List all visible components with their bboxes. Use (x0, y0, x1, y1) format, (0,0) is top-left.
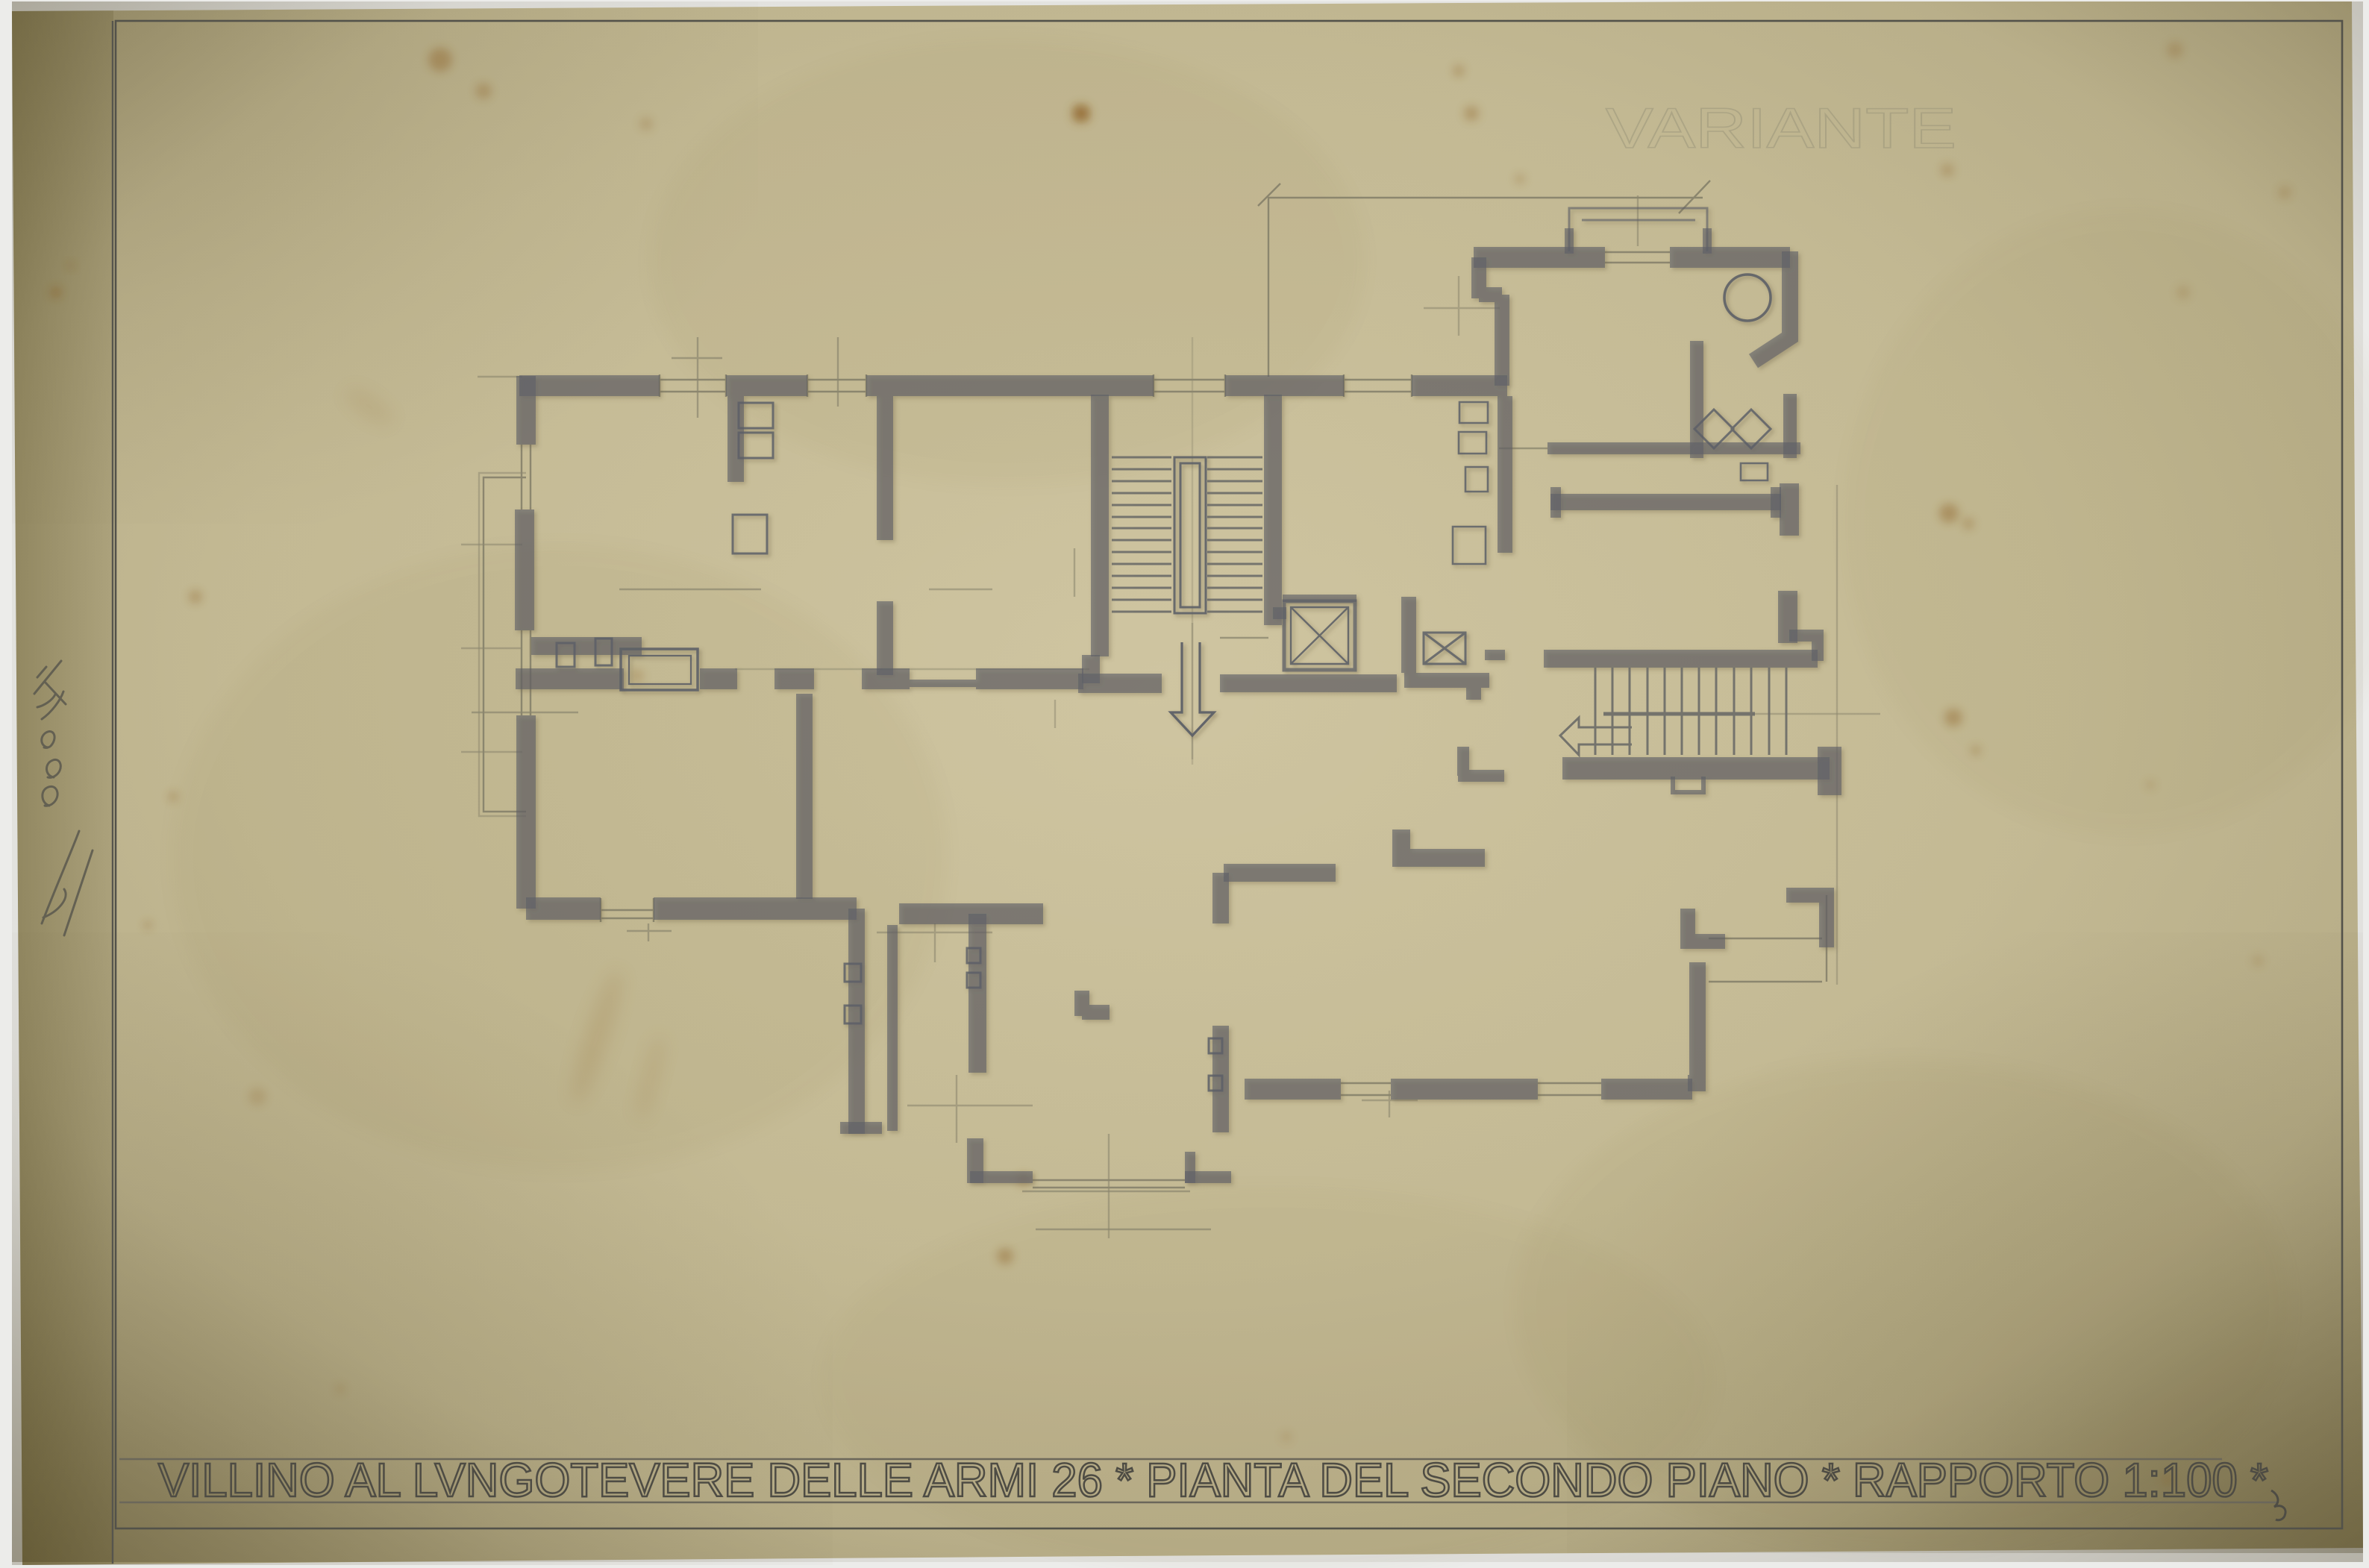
svg-text:VILLINO AL LVNGOTEVERE DELLE A: VILLINO AL LVNGOTEVERE DELLE ARMI 26 * P… (158, 1453, 2268, 1507)
svg-text:VARIANTE: VARIANTE (1606, 97, 1956, 160)
